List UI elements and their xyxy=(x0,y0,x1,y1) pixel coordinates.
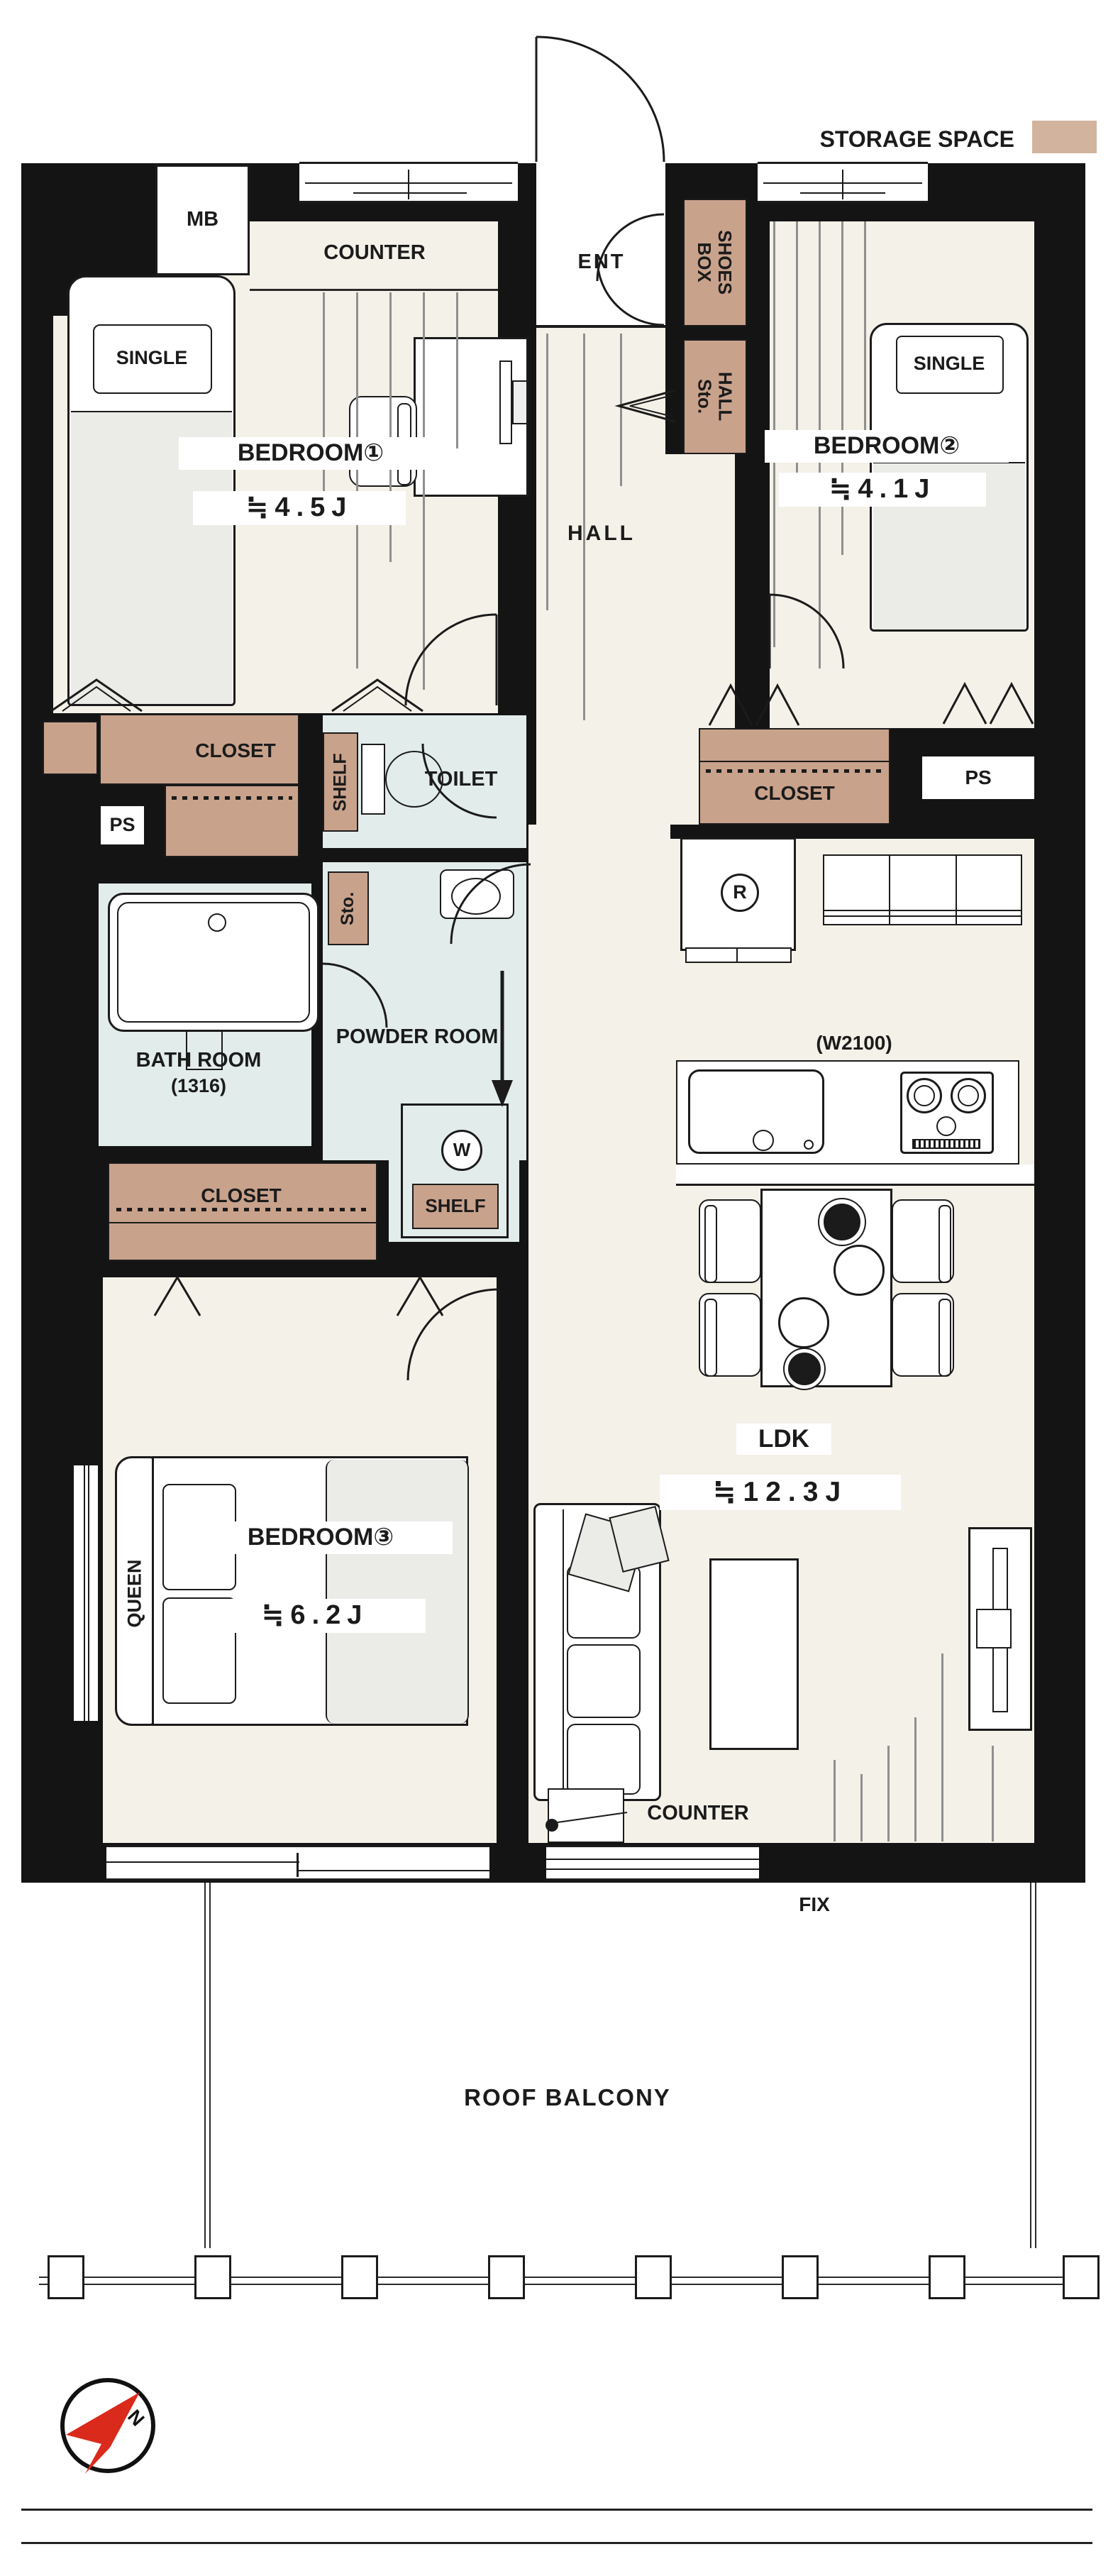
entrance-door-arc xyxy=(536,37,664,162)
single1-label: SINGLE xyxy=(105,345,199,372)
closet-door-mark xyxy=(756,686,799,725)
powder-door-arc xyxy=(451,864,531,944)
ldk-area: ≒12.3J xyxy=(660,1475,901,1510)
toilet-label: TOILET xyxy=(383,766,539,793)
hall-sto-fold-mark xyxy=(630,395,672,417)
plan-linework: N xyxy=(0,0,1113,2576)
closet3-label: CLOSET xyxy=(156,1182,326,1209)
ldk-counter-label: COUNTER xyxy=(627,1801,769,1827)
queen-label: QUEEN xyxy=(112,1544,157,1644)
closet-door-mark xyxy=(62,687,131,711)
counter-leader-line xyxy=(558,1812,627,1822)
kitchen-width-label: (W2100) xyxy=(786,1030,922,1056)
bathroom-label: BATH ROOM (1316) xyxy=(105,1043,292,1103)
hall-label: HALL xyxy=(552,519,651,548)
counter-leader-dot xyxy=(546,1819,558,1832)
fix-label: FIX xyxy=(770,1892,858,1917)
ldk-name: LDK xyxy=(736,1424,831,1455)
floor-plan: STORAGE SPACE MB xyxy=(0,0,1113,2576)
bedroom3-name: BEDROOM③ xyxy=(189,1521,453,1554)
bedroom2-door-arc xyxy=(770,595,843,668)
closet-door-mark xyxy=(943,684,986,724)
closet-door-mark xyxy=(155,1277,200,1316)
hall-sto-fold-mark xyxy=(619,390,675,422)
closet1-label: CLOSET xyxy=(150,738,321,764)
bedroom2-area: ≒4.1J xyxy=(779,473,986,507)
closet-door-mark xyxy=(709,686,752,725)
closet-door-mark xyxy=(990,684,1033,724)
bedroom1-door-arc xyxy=(406,615,497,705)
closet-door-mark xyxy=(51,680,142,711)
bedroom3-area: ≒6.2J xyxy=(204,1599,426,1633)
closet2-label: CLOSET xyxy=(709,781,880,806)
bedroom1-area: ≒4.5J xyxy=(193,491,406,525)
bedroom1-name: BEDROOM① xyxy=(179,437,443,470)
roof-balcony-label: ROOF BALCONY xyxy=(411,2082,724,2113)
closet-door-mark xyxy=(343,687,411,711)
bedroom2-name: BEDROOM② xyxy=(765,430,1009,463)
compass: N xyxy=(62,2380,153,2474)
powder-room-label: POWDER ROOM xyxy=(332,1006,502,1069)
ent-label: ENT xyxy=(552,248,651,277)
counter-top-label: COUNTER xyxy=(284,240,465,267)
single2-label: SINGLE xyxy=(895,351,1003,378)
closet-door-mark xyxy=(397,1277,443,1316)
bedroom3-door-arc xyxy=(408,1289,499,1380)
